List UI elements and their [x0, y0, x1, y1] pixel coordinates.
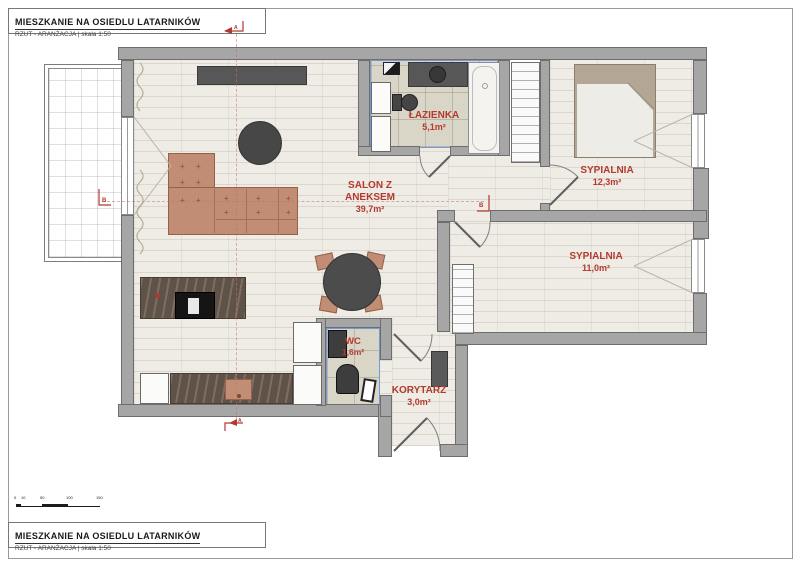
room-label-bathroom: ŁAZIENKA 5,1m²: [392, 110, 476, 133]
title-block-top: MIESZKANIE NA OSIEDLU LATARNIKÓW RZUT - …: [8, 8, 266, 34]
washbasin: [429, 66, 446, 83]
room-label-salon: SALON Z ANEKSEM 39,7m²: [333, 180, 407, 215]
room-name: SALON Z ANEKSEM: [333, 180, 407, 204]
scale-tick-label: 10: [21, 496, 25, 500]
room-name: SYPIALNIA: [536, 251, 656, 263]
bed-duvet: [577, 84, 653, 157]
wall-bedrooms-divider-left: [437, 210, 455, 222]
wall-bedroom2-left: [437, 222, 450, 332]
room-area: 1,6m²: [326, 347, 380, 357]
corner-sofa: [168, 153, 298, 235]
fridge: [293, 365, 322, 405]
wall-exterior-left-lower: [121, 215, 134, 416]
room-label-bedroom-2: SYPIALNIA 11,0m²: [536, 251, 656, 274]
washing-machine: [371, 116, 391, 152]
room-label-corridor: KORYTARZ 3,0m²: [374, 385, 464, 408]
wall-exterior-bottom-right: [455, 332, 707, 345]
scale-tick-label: 50: [40, 496, 44, 500]
wall-exterior-right-middle: [693, 168, 709, 239]
floor-plan-sheet: MIESZKANIE NA OSIEDLU LATARNIKÓW RZUT - …: [0, 0, 800, 566]
room-area: 12,3m²: [552, 177, 662, 188]
window-bedroom-2: [691, 239, 705, 293]
sofa-seat-edge: [216, 219, 296, 220]
floor-bedroom-2: [450, 222, 693, 334]
wall-exterior-bottom-left: [118, 404, 392, 417]
tv-sideboard: [197, 66, 307, 85]
kitchen-sink: [225, 379, 252, 400]
sheet-subtitle: RZUT - ARANŻACJA | skala 1:50: [15, 545, 265, 552]
tuft-mark: [180, 179, 185, 187]
room-name: SYPIALNIA: [552, 165, 662, 177]
wall-corridor-bottom-right: [440, 444, 468, 457]
wall-wc-right-upper: [380, 318, 392, 360]
scale-segment: [42, 504, 68, 507]
balcony-tiles: [48, 68, 122, 258]
room-label-bedroom-1: SYPIALNIA 12,3m²: [552, 165, 662, 188]
kitchen-counter: [170, 373, 293, 404]
sofa-seam: [278, 189, 279, 233]
scale-bar: 0 10 50 100 150: [14, 496, 106, 510]
scale-segment: [21, 506, 42, 507]
title-block-bottom: MIESZKANIE NA OSIEDLU LATARNIKÓW RZUT - …: [8, 522, 266, 548]
bathtub-drain: [482, 83, 488, 89]
wall-exterior-left-upper: [121, 60, 134, 117]
wall-bedroom1-left-upper: [540, 60, 550, 167]
bathtub-basin: [472, 66, 497, 151]
sheet-title: MIESZKANIE NA OSIEDLU LATARNIKÓW: [15, 532, 200, 544]
window-bedroom-1: [691, 114, 705, 168]
scale-tick-label: 150: [96, 496, 103, 500]
bathtub: [468, 62, 500, 154]
wc-toilet: [336, 364, 359, 394]
tuft-mark: [196, 163, 201, 171]
wardrobe-bedroom-2: [452, 264, 474, 334]
room-area: 3,0m²: [374, 397, 464, 408]
sofa-seam: [214, 189, 215, 233]
tuft-mark: [286, 209, 291, 217]
wall-bathroom-left: [358, 60, 370, 148]
bathroom-cabinet: [371, 82, 391, 114]
room-name: ŁAZIENKA: [392, 110, 476, 122]
balcony: [44, 64, 126, 262]
sheet-subtitle: RZUT - ARANŻACJA | skala 1:50: [15, 31, 265, 38]
sink-drain: [237, 394, 241, 398]
cooktop-control: [188, 298, 199, 314]
bathroom-shelf: [383, 62, 400, 75]
wall-bedrooms-divider: [490, 210, 707, 222]
double-bed: [574, 64, 656, 158]
wardrobe-bedroom-1: [511, 62, 540, 163]
scale-tick-label: 0: [14, 496, 16, 500]
toilet-bowl: [401, 94, 418, 111]
room-area: 5,1m²: [392, 122, 476, 133]
sofa-seam: [246, 189, 247, 233]
hood-marker: [155, 293, 160, 298]
section-line-b: [102, 201, 484, 202]
room-name: WC: [326, 336, 380, 347]
kitchen-island: [140, 277, 246, 319]
sheet-title: MIESZKANIE NA OSIEDLU LATARNIKÓW: [15, 18, 200, 30]
wall-exterior-top: [118, 47, 707, 60]
scale-segment: [68, 506, 100, 507]
cooktop: [175, 292, 215, 319]
wall-exterior-right-upper: [693, 60, 707, 114]
tuft-mark: [180, 163, 185, 171]
section-line-a: [236, 34, 237, 420]
room-area: 11,0m²: [536, 263, 656, 274]
tuft-mark: [196, 179, 201, 187]
tuft-mark: [224, 209, 229, 217]
tuft-mark: [256, 209, 261, 217]
room-name: KORYTARZ: [374, 385, 464, 397]
kitchen-cabinet: [140, 373, 169, 404]
dining-table: [323, 253, 381, 311]
room-label-wc: WC 1,6m²: [326, 336, 380, 358]
corridor-wardrobe: [431, 351, 448, 387]
scale-tick-label: 100: [66, 496, 73, 500]
tall-cabinet: [293, 322, 322, 363]
room-area: 39,7m²: [333, 204, 407, 215]
